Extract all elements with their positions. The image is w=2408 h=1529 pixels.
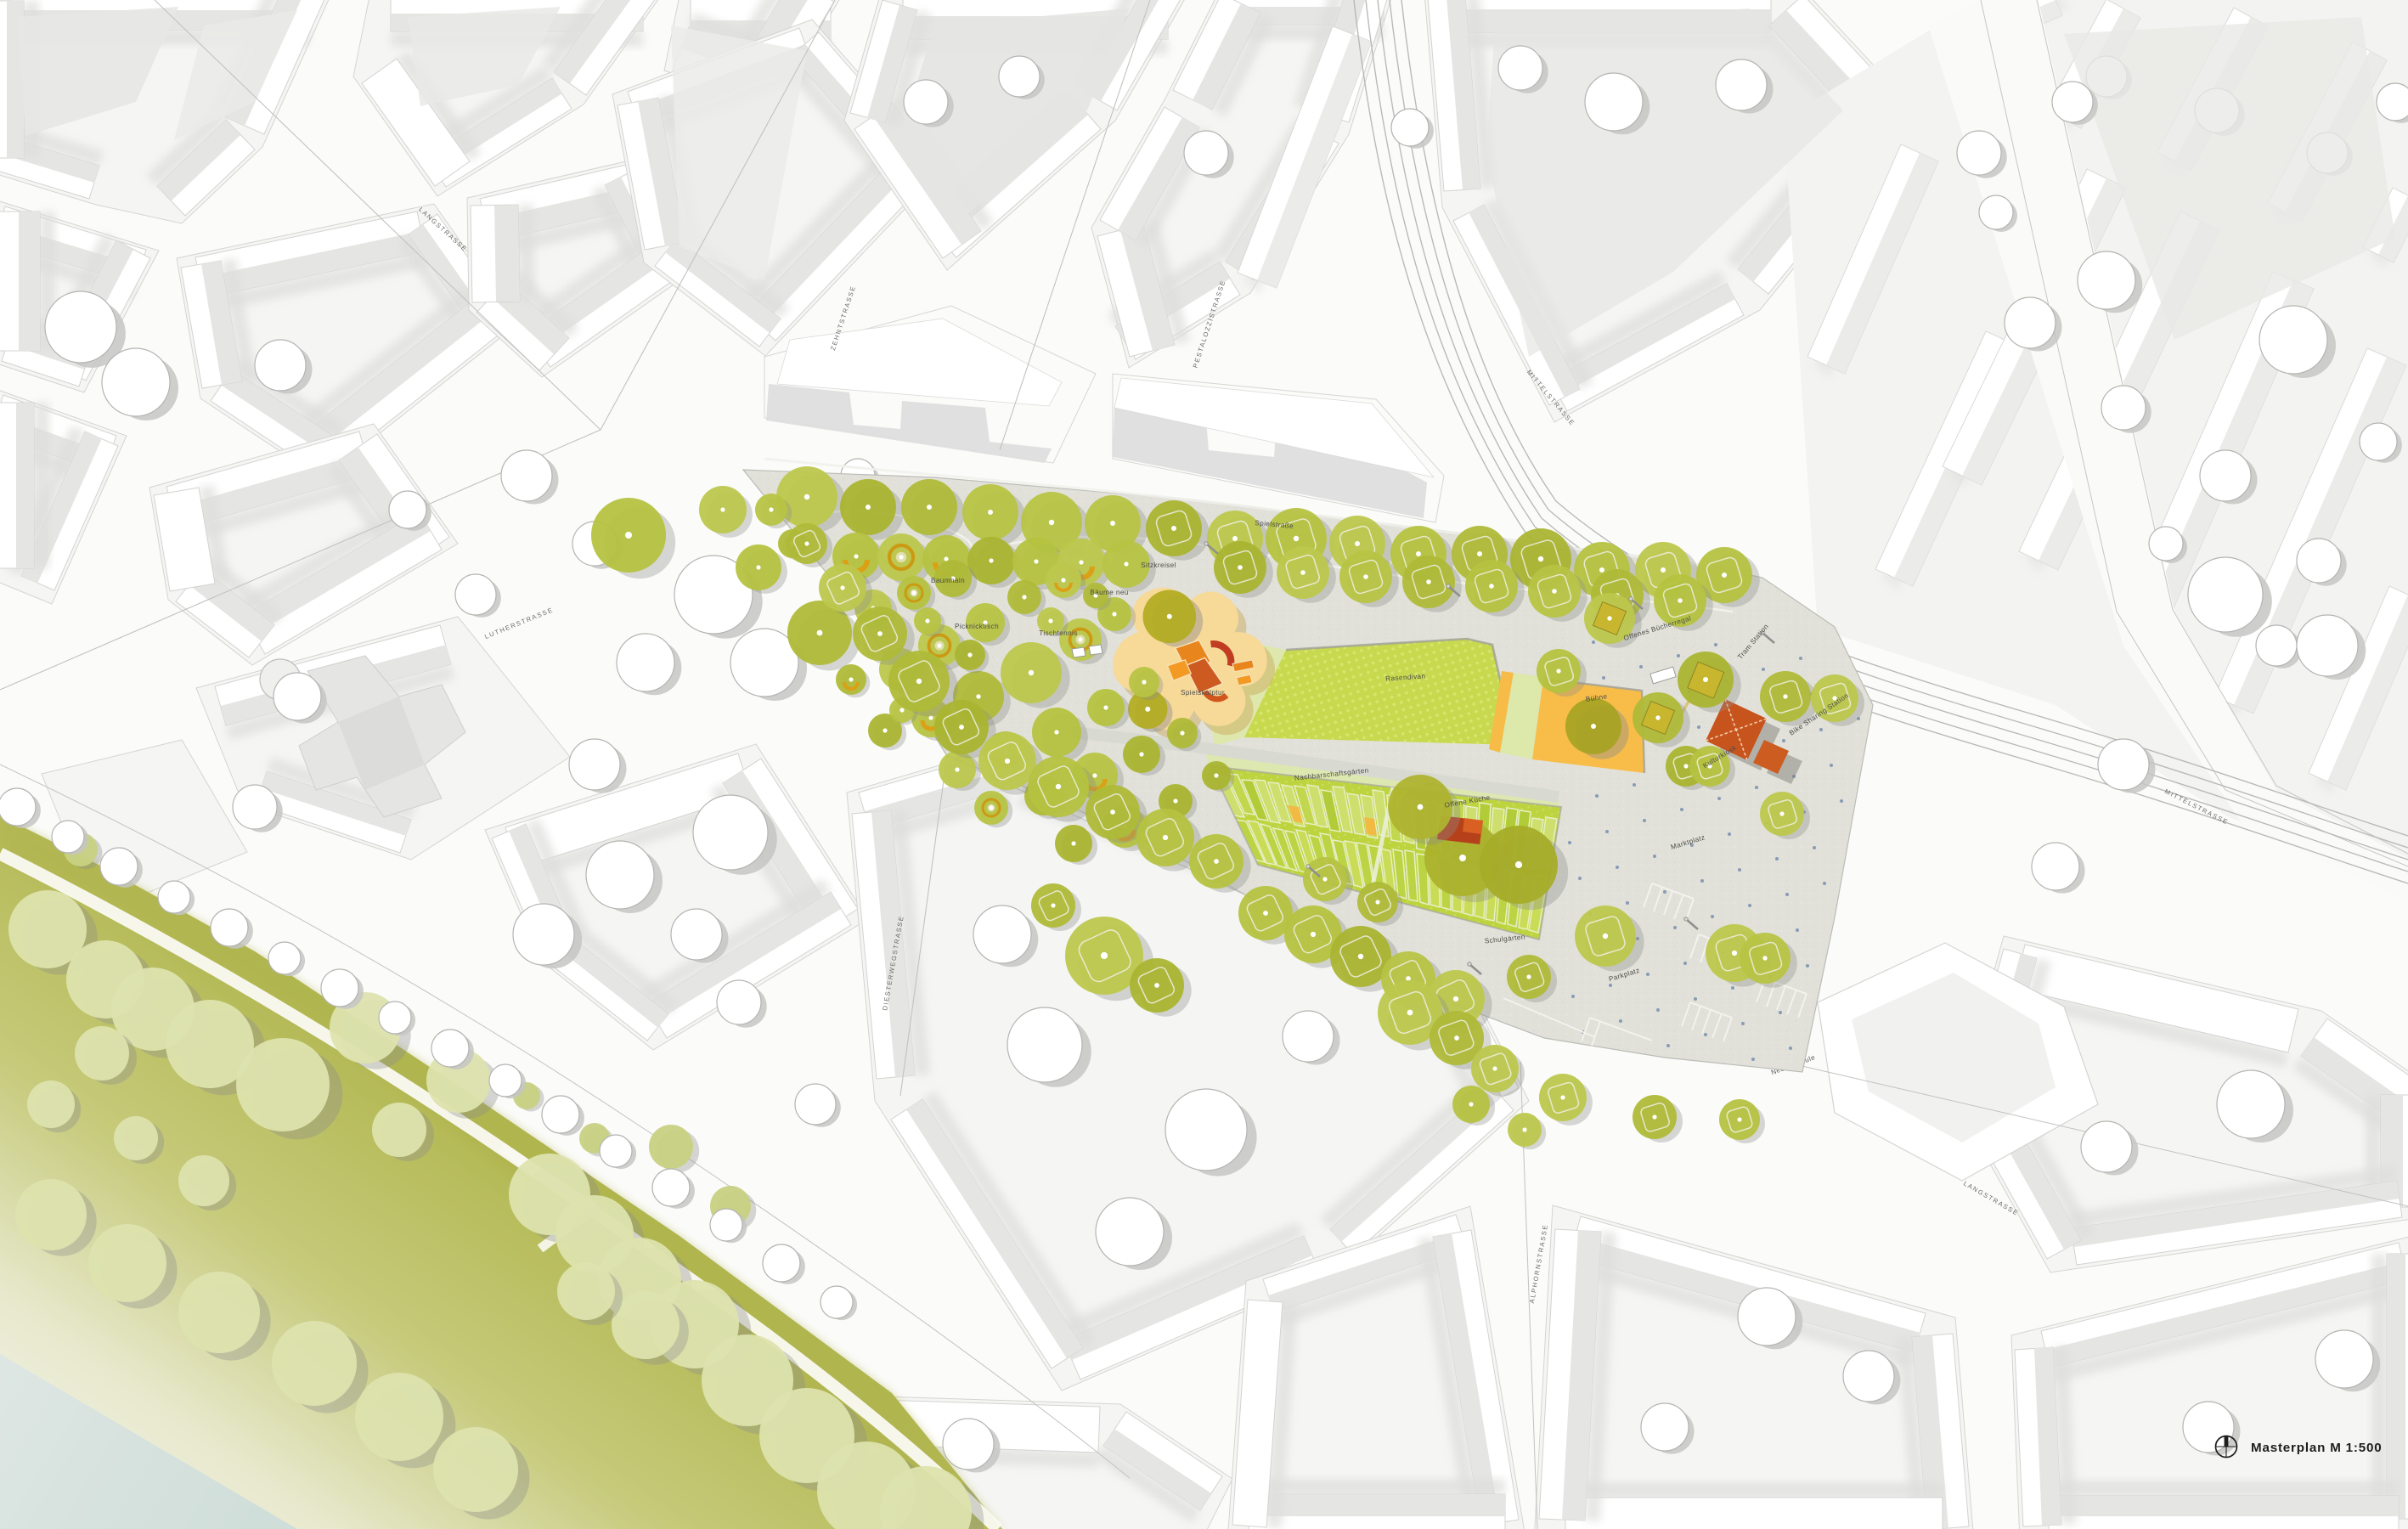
svg-text:Spielskulptur: Spielskulptur <box>1181 689 1225 697</box>
svg-text:Picknicktisch: Picknicktisch <box>955 623 999 630</box>
svg-text:Tischtennis: Tischtennis <box>1039 629 1078 637</box>
svg-text:Bäume neu: Bäume neu <box>1090 589 1129 596</box>
svg-text:Baumhain: Baumhain <box>931 577 965 584</box>
svg-text:Masterplan M 1:500: Masterplan M 1:500 <box>2251 1441 2383 1455</box>
svg-text:Sitzkreisel: Sitzkreisel <box>1141 561 1176 569</box>
